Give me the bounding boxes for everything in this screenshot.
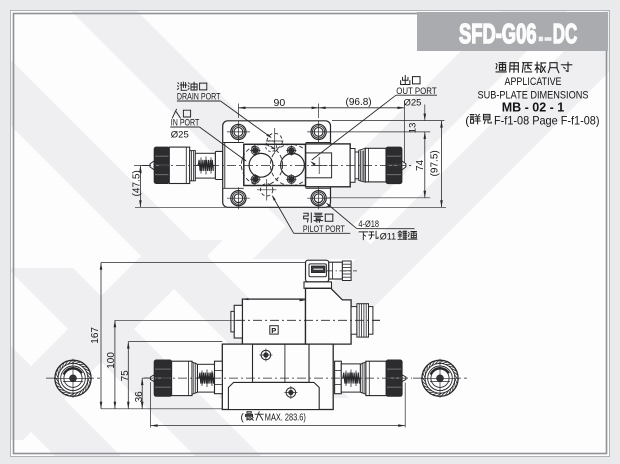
svg-text:Ø25: Ø25 bbox=[171, 129, 189, 140]
svg-text:OUT PORT: OUT PORT bbox=[396, 86, 437, 96]
svg-text:Ø25: Ø25 bbox=[404, 98, 422, 109]
svg-text:(: ( bbox=[465, 114, 469, 128]
svg-text:DC: DC bbox=[553, 18, 577, 49]
svg-text:DRAIN PORT: DRAIN PORT bbox=[177, 92, 221, 102]
svg-text:(47.5): (47.5) bbox=[131, 170, 142, 196]
svg-text:MB - 02 - 1: MB - 02 - 1 bbox=[502, 101, 565, 115]
svg-text:74: 74 bbox=[415, 159, 426, 171]
svg-text:APPLICATIVE: APPLICATIVE bbox=[505, 76, 562, 88]
svg-text:167: 167 bbox=[90, 327, 101, 344]
svg-text:75: 75 bbox=[120, 370, 131, 382]
svg-text:36: 36 bbox=[134, 391, 145, 403]
svg-text:F-f1-08 Page F-f1-08): F-f1-08 Page F-f1-08) bbox=[494, 114, 600, 128]
svg-text:SFD-G06: SFD-G06 bbox=[459, 18, 537, 49]
svg-text:Ø11: Ø11 bbox=[380, 232, 396, 242]
svg-text:PILOT PORT: PILOT PORT bbox=[303, 224, 345, 234]
svg-text:100: 100 bbox=[106, 352, 117, 369]
svg-text:MAX. 283.6): MAX. 283.6) bbox=[265, 412, 306, 423]
svg-text:(96.8): (96.8) bbox=[346, 97, 372, 108]
svg-text:13: 13 bbox=[408, 123, 419, 134]
svg-text:P: P bbox=[271, 326, 276, 335]
svg-text:90: 90 bbox=[274, 97, 286, 109]
svg-text:IN PORT: IN PORT bbox=[171, 118, 200, 128]
svg-text:(97.5): (97.5) bbox=[429, 150, 440, 176]
